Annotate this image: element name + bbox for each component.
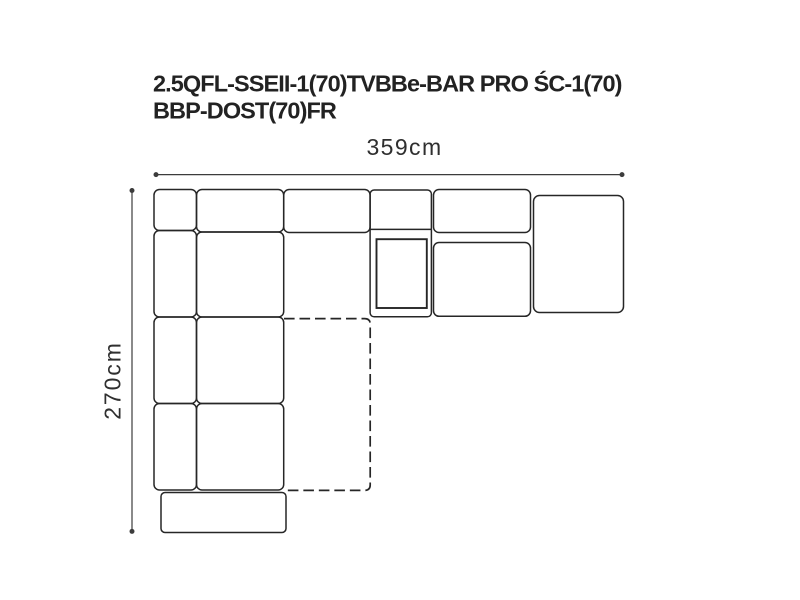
svg-text:BBP-DOST(70)FR: BBP-DOST(70)FR xyxy=(153,97,337,123)
svg-text:2.5QFL-SSEII-1(70)TVBBe-BAR PR: 2.5QFL-SSEII-1(70)TVBBe-BAR PRO ŚC-1(70) xyxy=(153,70,622,97)
svg-text:270cm: 270cm xyxy=(100,341,126,420)
svg-text:359cm: 359cm xyxy=(366,134,442,160)
